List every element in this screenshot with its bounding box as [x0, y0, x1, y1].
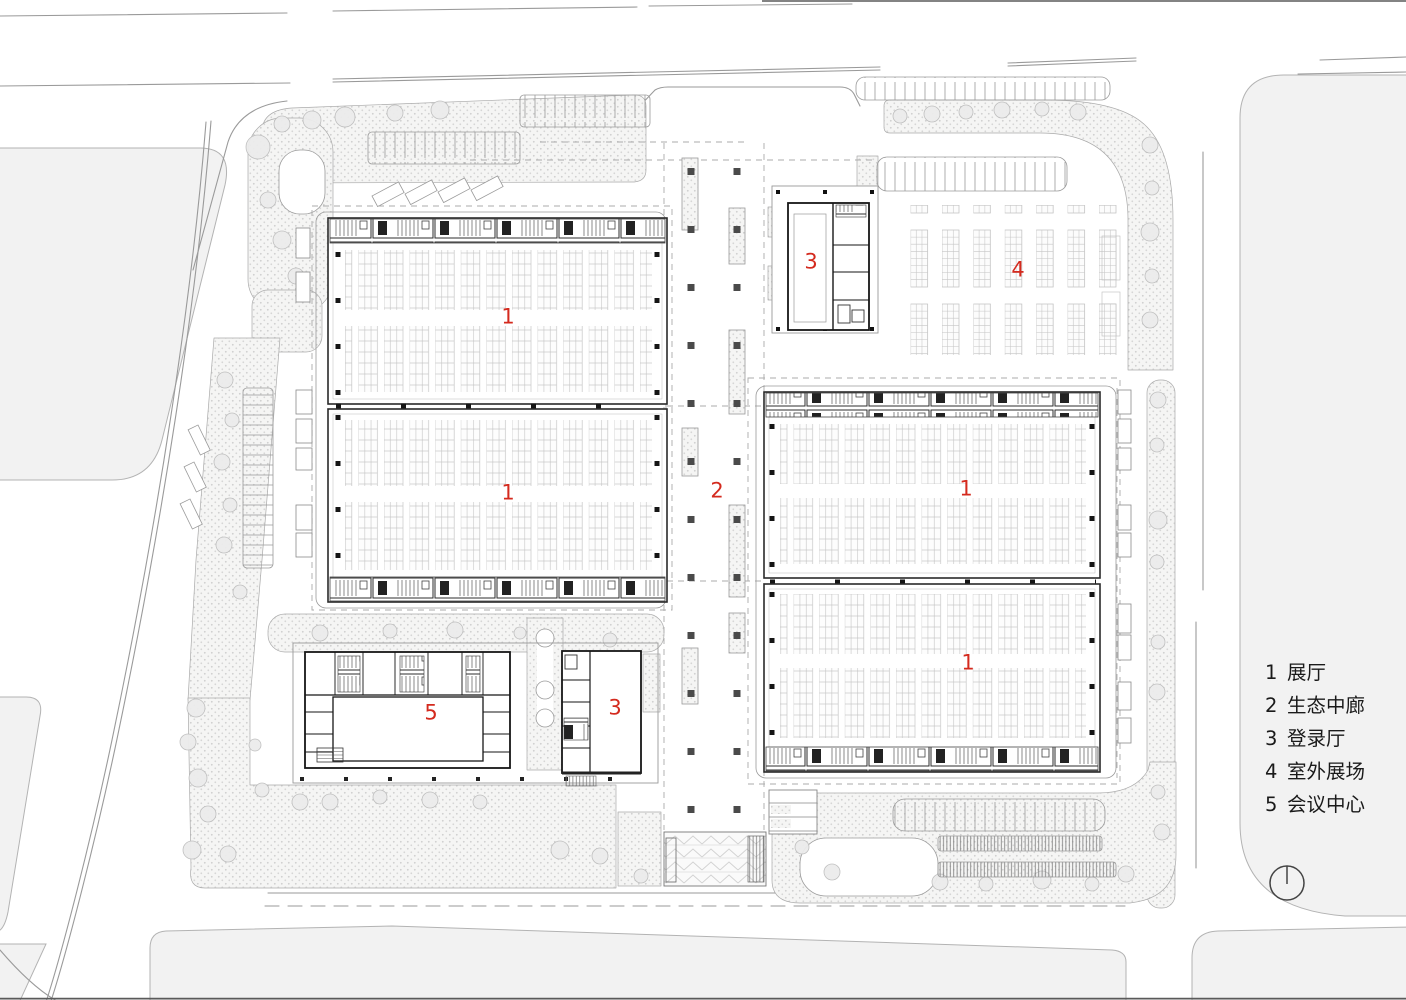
site-plan-page: 1 1 2 3 4 1 1 5 3 1展厅 2生态中廊 3登录厅 4室外展场 5…	[0, 0, 1406, 1000]
exhibition-hall-sw	[328, 409, 667, 602]
exhibition-hall-se	[764, 584, 1100, 772]
exhibition-hall-nw	[328, 218, 667, 404]
plan-label-outdoor: 4	[1011, 260, 1024, 281]
plan-label-hall-ne: 1	[959, 479, 972, 500]
legend-item-registration-hall: 3登录厅	[1265, 722, 1365, 755]
plan-label-hall-se: 1	[961, 653, 974, 674]
plan-label-hall-sw: 1	[501, 483, 514, 504]
legend-item-eco-corridor: 2生态中廊	[1265, 689, 1365, 722]
plan-label-registration-north: 3	[804, 252, 817, 273]
plan-label-hall-nw: 1	[501, 307, 514, 328]
plan-label-registration-south: 3	[608, 698, 621, 719]
registration-hall-south	[562, 651, 641, 786]
eco-corridor	[682, 158, 745, 868]
plan-label-conference: 5	[424, 703, 437, 724]
plan-label-corridor: 2	[710, 481, 723, 502]
legend: 1展厅 2生态中廊 3登录厅 4室外展场 5会议中心	[1265, 656, 1365, 821]
legend-item-conference-center: 5会议中心	[1265, 788, 1365, 821]
legend-item-outdoor-exhibition: 4室外展场	[1265, 755, 1365, 788]
conference-main-hall	[333, 697, 483, 761]
exhibition-hall-ne	[764, 392, 1100, 578]
site-plan-drawing	[0, 0, 1406, 1000]
legend-item-exhibition-hall: 1展厅	[1265, 656, 1365, 689]
registration-hall-north	[772, 186, 878, 333]
